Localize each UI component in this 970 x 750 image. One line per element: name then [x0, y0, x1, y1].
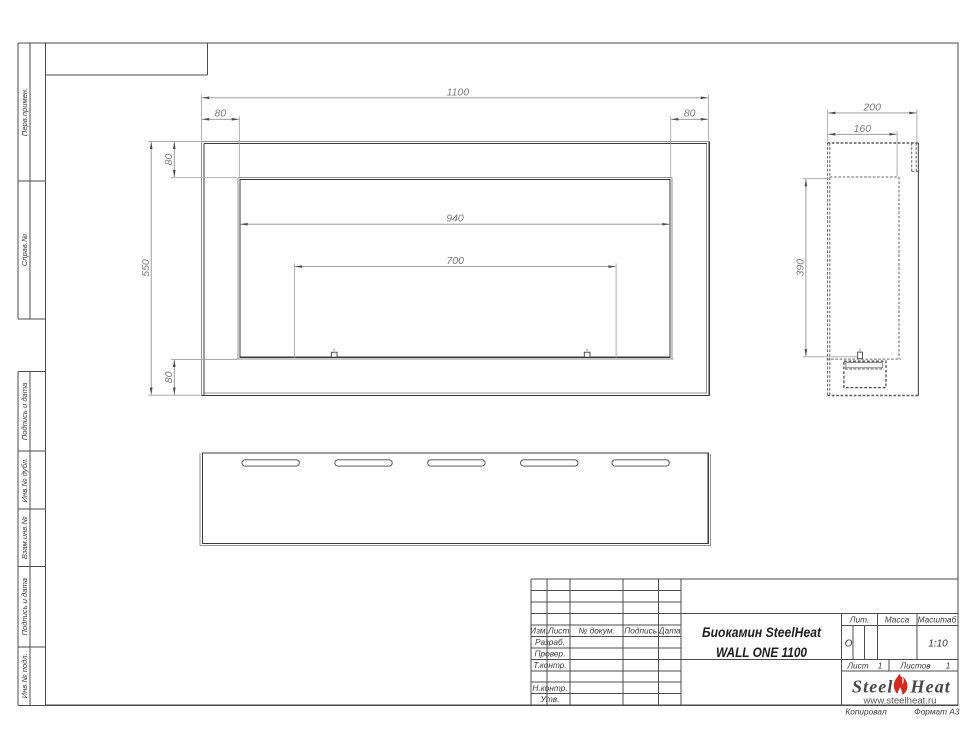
- svg-text:Копировал: Копировал: [845, 707, 887, 717]
- svg-text:Подпись: Подпись: [624, 626, 657, 636]
- svg-text:1100: 1100: [447, 86, 470, 98]
- svg-text:Справ.№: Справ.№: [20, 234, 29, 266]
- svg-text:Масса: Масса: [885, 615, 910, 625]
- svg-text:Т.контр.: Т.контр.: [533, 660, 566, 670]
- svg-text:Heat: Heat: [910, 677, 951, 697]
- svg-text:Инв.№ дубл.: Инв.№ дубл.: [20, 458, 29, 503]
- svg-text:80: 80: [163, 371, 175, 383]
- svg-text:1: 1: [878, 661, 883, 671]
- svg-text:1:10: 1:10: [928, 639, 948, 650]
- svg-text:Биокамин SteelHeat: Биокамин SteelHeat: [702, 625, 821, 640]
- svg-text:№ докум.: № докум.: [578, 626, 615, 636]
- svg-text:550: 550: [140, 259, 152, 277]
- svg-text:Листов: Листов: [899, 661, 931, 671]
- svg-text:Провер.: Провер.: [535, 649, 566, 659]
- svg-text:Лит.: Лит.: [849, 615, 869, 625]
- svg-text:Изм.: Изм.: [530, 626, 548, 636]
- svg-text:Утв.: Утв.: [540, 694, 560, 704]
- svg-text:80: 80: [163, 154, 175, 166]
- svg-text:О: О: [845, 639, 853, 650]
- svg-text:Разраб.: Разраб.: [535, 637, 565, 647]
- svg-text:Дата: Дата: [658, 626, 681, 636]
- svg-text:160: 160: [854, 123, 872, 135]
- svg-text:200: 200: [862, 101, 881, 113]
- svg-text:Лист: Лист: [846, 661, 868, 671]
- svg-text:80: 80: [684, 108, 696, 120]
- svg-text:700: 700: [446, 255, 464, 267]
- svg-text:Steel: Steel: [852, 677, 894, 697]
- svg-text:Масштаб: Масштаб: [918, 615, 957, 625]
- svg-text:WALL ONE 1100: WALL ONE 1100: [716, 645, 807, 660]
- svg-text:www.steelheat.ru: www.steelheat.ru: [862, 695, 936, 706]
- svg-text:Взам.инв.№: Взам.инв.№: [20, 516, 29, 559]
- svg-text:Н.контр.: Н.контр.: [532, 683, 567, 693]
- svg-text:390: 390: [795, 259, 807, 277]
- svg-text:Инв.№ подл.: Инв.№ подл.: [20, 653, 29, 698]
- svg-text:Лист: Лист: [547, 626, 569, 636]
- svg-text:Перв.примен.: Перв.примен.: [20, 88, 29, 136]
- svg-text:Подпись и дата: Подпись и дата: [20, 578, 29, 635]
- svg-text:Подпись и дата: Подпись и дата: [20, 383, 29, 440]
- svg-text:940: 940: [446, 213, 464, 225]
- svg-text:1: 1: [946, 661, 951, 671]
- svg-text:80: 80: [215, 108, 227, 120]
- svg-text:Формат А3: Формат А3: [914, 707, 960, 717]
